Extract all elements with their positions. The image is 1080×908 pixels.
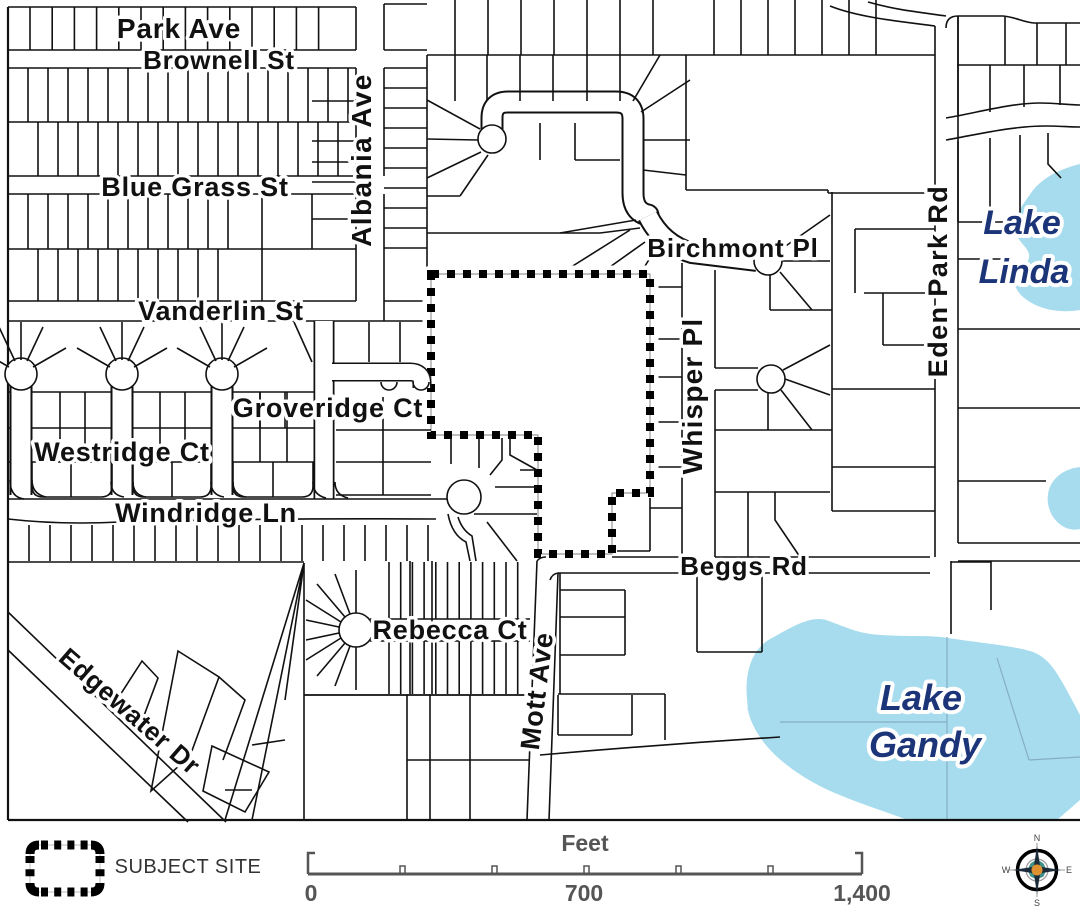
svg-text:S: S (1034, 898, 1040, 908)
svg-text:Brownell St: Brownell St (143, 45, 295, 75)
svg-text:Lake: Lake (880, 677, 962, 718)
svg-text:Gandy: Gandy (869, 724, 983, 765)
svg-text:Feet: Feet (561, 830, 609, 856)
svg-text:Birchmont Pl: Birchmont Pl (647, 233, 818, 263)
svg-text:0: 0 (305, 880, 318, 906)
svg-text:Linda: Linda (979, 253, 1070, 291)
svg-text:1,400: 1,400 (833, 880, 891, 906)
svg-text:Albania Ave: Albania Ave (346, 73, 377, 247)
svg-text:Whisper Pl: Whisper Pl (677, 318, 708, 475)
svg-text:W: W (1002, 865, 1011, 875)
svg-text:Edgewater Dr: Edgewater Dr (53, 642, 206, 781)
svg-text:Beggs Rd: Beggs Rd (680, 551, 808, 581)
svg-text:Blue Grass St: Blue Grass St (101, 172, 288, 202)
svg-text:Eden Park Rd: Eden Park Rd (923, 185, 953, 377)
svg-text:SUBJECT SITE: SUBJECT SITE (115, 856, 262, 878)
svg-text:Windridge Ln: Windridge Ln (115, 498, 297, 528)
svg-text:Rebecca Ct: Rebecca Ct (372, 615, 527, 645)
svg-text:N: N (1034, 833, 1041, 843)
svg-text:Vanderlin St: Vanderlin St (138, 296, 304, 326)
svg-text:Lake: Lake (983, 204, 1061, 242)
svg-text:700: 700 (565, 880, 603, 906)
svg-text:Westridge Ct: Westridge Ct (34, 437, 210, 467)
svg-text:Groveridge Ct: Groveridge Ct (233, 393, 423, 423)
svg-text:E: E (1066, 865, 1072, 875)
svg-text:Park Ave: Park Ave (117, 13, 241, 44)
